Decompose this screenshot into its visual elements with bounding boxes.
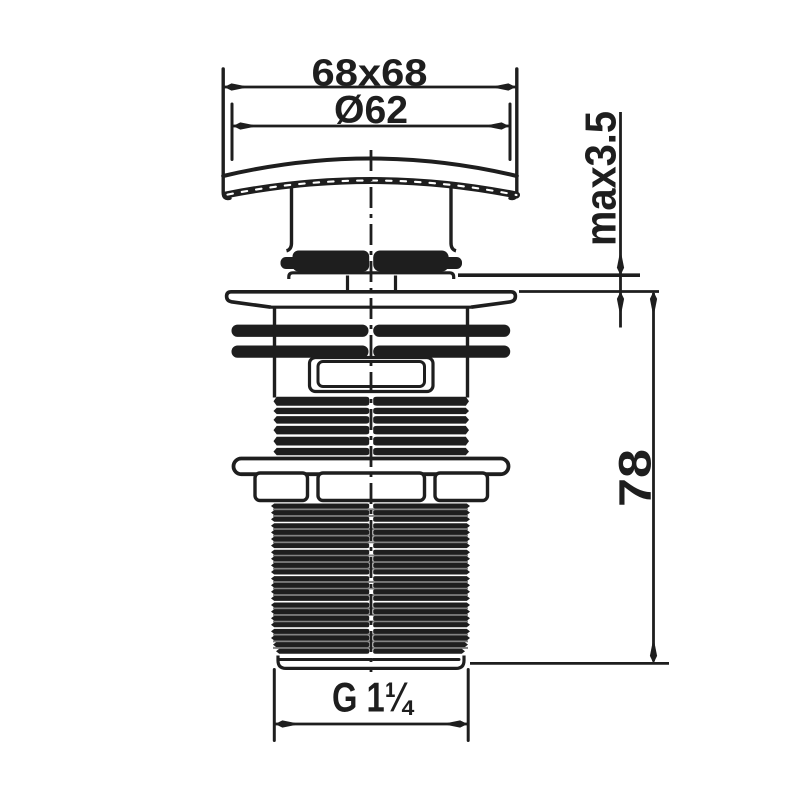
svg-text:78: 78 <box>610 449 661 507</box>
svg-text:G 1¼: G 1¼ <box>332 674 414 721</box>
svg-text:max3.5: max3.5 <box>577 111 626 246</box>
